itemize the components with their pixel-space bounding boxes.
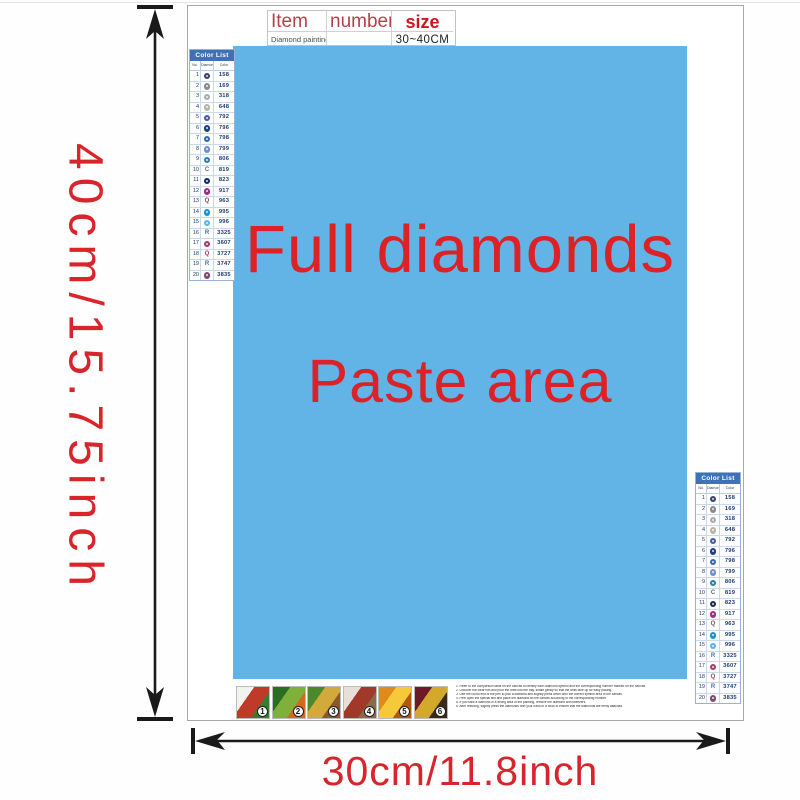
diamond-symbol-cell bbox=[201, 103, 214, 113]
dmc-color-code: 796 bbox=[720, 547, 740, 557]
color-list-row: 15 996 bbox=[190, 218, 234, 229]
color-list-row: 3 318 bbox=[696, 515, 740, 526]
dmc-color-code: 648 bbox=[214, 103, 234, 113]
diamond-symbol-icon bbox=[710, 695, 717, 702]
color-list-row: 8 799 bbox=[696, 568, 740, 579]
color-list-row: 17 3607 bbox=[696, 662, 740, 673]
diamond-symbol-cell bbox=[707, 515, 720, 525]
dmc-color-code: 318 bbox=[720, 515, 740, 525]
size-value-cell: 30~40CM bbox=[392, 31, 453, 45]
diamond-symbol-icon: Q bbox=[205, 197, 210, 207]
col-no: No. bbox=[696, 484, 707, 493]
dmc-color-code: 3747 bbox=[720, 683, 740, 693]
kit-sheet: Item number size Diamond painting 30~40C… bbox=[187, 5, 744, 721]
color-list-row: 7 798 bbox=[190, 134, 234, 145]
dmc-color-code: 3607 bbox=[214, 239, 234, 249]
diamond-symbol-icon bbox=[710, 580, 717, 587]
diamond-symbol-icon bbox=[204, 209, 211, 216]
instruction-line: 6. After finishing, slightly press the d… bbox=[456, 705, 710, 709]
diamond-symbol-cell bbox=[707, 494, 720, 504]
color-list-row: 13 Q 963 bbox=[190, 197, 234, 208]
dmc-color-code: 3325 bbox=[214, 229, 234, 239]
diamond-symbol-icon: R bbox=[205, 229, 209, 239]
diamond-symbol-icon bbox=[204, 241, 211, 248]
diamond-symbol-cell bbox=[201, 71, 214, 81]
diamond-symbol-cell bbox=[201, 92, 214, 102]
diamond-symbol-icon bbox=[710, 548, 717, 555]
dmc-color-code: 917 bbox=[214, 187, 234, 197]
color-number: 20 bbox=[190, 271, 201, 281]
col-no: No. bbox=[190, 61, 201, 70]
dmc-color-code: 3747 bbox=[214, 260, 234, 270]
diamond-symbol-cell bbox=[707, 641, 720, 651]
dmc-color-code: 806 bbox=[720, 578, 740, 588]
step-photo-thumbnail: 4 bbox=[343, 686, 377, 719]
diamond-symbol-cell: Q bbox=[201, 250, 214, 260]
color-number: 15 bbox=[190, 218, 201, 228]
color-number: 9 bbox=[696, 578, 707, 588]
dmc-color-code: 819 bbox=[214, 166, 234, 176]
diamond-symbol-icon bbox=[710, 517, 717, 524]
step-number-badge: 3 bbox=[328, 706, 339, 717]
diamond-symbol-icon: C bbox=[205, 166, 209, 176]
color-list-row: 7 798 bbox=[696, 557, 740, 568]
diamond-symbol-cell bbox=[707, 578, 720, 588]
color-list-row: 16 R 3325 bbox=[696, 652, 740, 663]
item-table-header-row: Item number size bbox=[268, 11, 455, 31]
diamond-symbol-icon bbox=[204, 178, 211, 185]
dmc-color-code: 996 bbox=[720, 641, 740, 651]
color-list-row: 9 806 bbox=[696, 578, 740, 589]
color-number: 5 bbox=[190, 113, 201, 123]
color-list-title: Color List bbox=[696, 473, 740, 484]
col-diamond: Diamond bbox=[707, 484, 720, 493]
color-list-row: 11 823 bbox=[190, 176, 234, 187]
step-photo-thumbnail: 1 bbox=[236, 686, 270, 719]
dmc-color-code: 3727 bbox=[720, 673, 740, 683]
color-number: 7 bbox=[696, 557, 707, 567]
paste-area-title-line2: Paste area bbox=[233, 346, 687, 416]
dmc-color-code: 169 bbox=[720, 505, 740, 515]
color-number: 10 bbox=[190, 166, 201, 176]
diamond-symbol-cell bbox=[201, 239, 214, 249]
dmc-color-code: 806 bbox=[214, 155, 234, 165]
color-list-row: 1 158 bbox=[696, 494, 740, 505]
diamond-symbol-cell bbox=[201, 113, 214, 123]
color-list-row: 9 806 bbox=[190, 155, 234, 166]
dmc-color-code: 158 bbox=[720, 494, 740, 504]
color-number: 2 bbox=[696, 505, 707, 515]
color-number: 3 bbox=[696, 515, 707, 525]
size-header-cell: size bbox=[392, 11, 453, 31]
color-number: 10 bbox=[696, 589, 707, 599]
dmc-color-code: 963 bbox=[720, 620, 740, 630]
color-list-rows: 1 158 2 169 3 318 bbox=[190, 71, 234, 280]
diamond-symbol-cell bbox=[201, 187, 214, 197]
color-number: 9 bbox=[190, 155, 201, 165]
color-list-row: 12 917 bbox=[190, 187, 234, 198]
color-list-row: 3 318 bbox=[190, 92, 234, 103]
diamond-symbol-cell bbox=[201, 155, 214, 165]
step-number-badge: 2 bbox=[293, 706, 304, 717]
color-number: 7 bbox=[190, 134, 201, 144]
color-list-row: 20 3835 bbox=[190, 271, 234, 281]
color-list-row: 18 Q 3727 bbox=[190, 250, 234, 261]
color-number: 14 bbox=[190, 208, 201, 218]
diamond-symbol-icon bbox=[204, 188, 211, 195]
dmc-color-code: 996 bbox=[214, 218, 234, 228]
color-number: 8 bbox=[696, 568, 707, 578]
color-number: 16 bbox=[190, 229, 201, 239]
diamond-symbol-icon bbox=[204, 83, 211, 90]
diamond-symbol-icon bbox=[204, 272, 211, 279]
color-number: 4 bbox=[696, 526, 707, 536]
dmc-color-code: 318 bbox=[214, 92, 234, 102]
color-number: 8 bbox=[190, 145, 201, 155]
diamond-symbol-icon bbox=[204, 104, 211, 111]
diamond-symbol-icon bbox=[710, 506, 717, 513]
diamond-symbol-cell bbox=[707, 557, 720, 567]
color-number: 18 bbox=[696, 673, 707, 683]
color-number: 11 bbox=[696, 599, 707, 609]
dmc-color-code: 648 bbox=[720, 526, 740, 536]
diamond-symbol-cell bbox=[201, 271, 214, 281]
dmc-color-code: 799 bbox=[214, 145, 234, 155]
diamond-symbol-cell: Q bbox=[707, 620, 720, 630]
diamond-symbol-icon bbox=[204, 115, 211, 122]
product-infographic: 40cm/15.75inch Item number size Diamond … bbox=[0, 0, 800, 800]
color-number: 18 bbox=[190, 250, 201, 260]
item-info-table: Item number size Diamond painting 30~40C… bbox=[267, 10, 456, 46]
dmc-color-code: 3835 bbox=[720, 694, 740, 704]
step-number-badge: 4 bbox=[364, 706, 375, 717]
diamond-symbol-cell: R bbox=[201, 260, 214, 270]
diamond-symbol-icon bbox=[204, 73, 211, 80]
vertical-dimension-arrow bbox=[130, 0, 180, 725]
step-number-badge: 1 bbox=[257, 706, 268, 717]
color-number: 1 bbox=[190, 71, 201, 81]
color-list-row: 2 169 bbox=[696, 505, 740, 516]
dmc-color-code: 995 bbox=[720, 631, 740, 641]
color-number: 6 bbox=[696, 547, 707, 557]
diamond-symbol-icon bbox=[710, 611, 717, 618]
color-list-row: 13 Q 963 bbox=[696, 620, 740, 631]
color-list-row: 4 648 bbox=[696, 526, 740, 537]
color-number: 12 bbox=[190, 187, 201, 197]
diamond-symbol-icon: R bbox=[711, 683, 715, 693]
color-list-row: 12 917 bbox=[696, 610, 740, 621]
diamond-symbol-cell bbox=[707, 568, 720, 578]
diamond-symbol-icon: R bbox=[205, 260, 209, 270]
diamond-symbol-cell bbox=[201, 145, 214, 155]
color-list-right: Color List No. Diamond Color 1 158 2 bbox=[695, 472, 741, 704]
diamond-symbol-cell: Q bbox=[707, 673, 720, 683]
color-list-row: 5 792 bbox=[190, 113, 234, 124]
step-photo-thumbnail: 6 bbox=[414, 686, 448, 719]
diamond-symbol-icon: Q bbox=[711, 673, 716, 683]
step-photo-thumbnail: 5 bbox=[378, 686, 412, 719]
diamond-symbol-cell: R bbox=[707, 652, 720, 662]
diamond-symbol-cell bbox=[201, 208, 214, 218]
top-edge-line bbox=[0, 2, 800, 3]
diamond-symbol-cell bbox=[707, 536, 720, 546]
color-list-row: 17 3607 bbox=[190, 239, 234, 250]
height-dimension-label: 40cm/15.75inch bbox=[56, 72, 114, 664]
color-list-row: 10 C 819 bbox=[190, 166, 234, 177]
color-list-row: 19 R 3747 bbox=[190, 260, 234, 271]
color-list-row: 4 648 bbox=[190, 103, 234, 114]
color-list-left: Color List No. Diamond Color 1 158 2 bbox=[189, 49, 235, 281]
color-list-rows: 1 158 2 169 3 318 bbox=[696, 494, 740, 703]
diamond-symbol-cell bbox=[201, 124, 214, 134]
step-photo-thumbnail: 3 bbox=[307, 686, 341, 719]
color-list-row: 10 C 819 bbox=[696, 589, 740, 600]
instruction-step-thumbnails: 1 2 3 4 5 6 bbox=[236, 686, 449, 719]
dmc-color-code: 3607 bbox=[720, 662, 740, 672]
color-number: 14 bbox=[696, 631, 707, 641]
diamond-symbol-icon bbox=[204, 125, 211, 132]
diamond-symbol-icon bbox=[204, 136, 211, 143]
color-number: 11 bbox=[190, 176, 201, 186]
diamond-symbol-cell bbox=[707, 526, 720, 536]
color-number: 17 bbox=[190, 239, 201, 249]
diamond-symbol-icon bbox=[710, 569, 717, 576]
diamond-symbol-icon bbox=[204, 146, 211, 153]
diamond-symbol-icon: Q bbox=[711, 620, 716, 630]
color-number: 6 bbox=[190, 124, 201, 134]
diamond-symbol-icon bbox=[710, 632, 717, 639]
color-number: 13 bbox=[190, 197, 201, 207]
color-list-row: 18 Q 3727 bbox=[696, 673, 740, 684]
color-number: 13 bbox=[696, 620, 707, 630]
diamond-symbol-cell: C bbox=[201, 166, 214, 176]
dmc-color-code: 792 bbox=[720, 536, 740, 546]
dmc-color-code: 3727 bbox=[214, 250, 234, 260]
dmc-color-code: 798 bbox=[214, 134, 234, 144]
dmc-color-code: 799 bbox=[720, 568, 740, 578]
diamond-symbol-cell bbox=[707, 631, 720, 641]
diamond-symbol-icon: C bbox=[711, 589, 715, 599]
item-table-data-row: Diamond painting 30~40CM bbox=[268, 31, 455, 45]
width-dimension-label: 30cm/11.8inch bbox=[240, 748, 680, 795]
diamond-symbol-icon: Q bbox=[205, 250, 210, 260]
dmc-color-code: 792 bbox=[214, 113, 234, 123]
diamond-symbol-icon bbox=[710, 601, 717, 608]
color-number: 5 bbox=[696, 536, 707, 546]
dmc-color-code: 3325 bbox=[720, 652, 740, 662]
paste-area-canvas: Full diamonds Paste area bbox=[233, 46, 687, 679]
diamond-symbol-cell bbox=[201, 176, 214, 186]
diamond-symbol-cell bbox=[201, 82, 214, 92]
dmc-color-code: 819 bbox=[720, 589, 740, 599]
color-list-row: 5 792 bbox=[696, 536, 740, 547]
number-value-cell bbox=[327, 31, 392, 45]
color-list-row: 1 158 bbox=[190, 71, 234, 82]
dmc-color-code: 963 bbox=[214, 197, 234, 207]
dmc-color-code: 917 bbox=[720, 610, 740, 620]
color-list-column-headers: No. Diamond Color bbox=[696, 484, 740, 494]
diamond-symbol-icon bbox=[710, 538, 717, 545]
color-list-row: 6 796 bbox=[696, 547, 740, 558]
diamond-symbol-cell bbox=[707, 662, 720, 672]
diamond-symbol-icon bbox=[204, 220, 211, 227]
color-list-row: 15 996 bbox=[696, 641, 740, 652]
col-color: Color bbox=[720, 484, 740, 493]
diamond-symbol-icon bbox=[204, 157, 211, 164]
diamond-symbol-icon bbox=[710, 559, 717, 566]
diamond-symbol-cell bbox=[707, 505, 720, 515]
color-number: 15 bbox=[696, 641, 707, 651]
diamond-symbol-cell bbox=[707, 599, 720, 609]
color-list-column-headers: No. Diamond Color bbox=[190, 61, 234, 71]
item-header-cell: Item bbox=[268, 11, 327, 31]
dmc-color-code: 158 bbox=[214, 71, 234, 81]
dmc-color-code: 169 bbox=[214, 82, 234, 92]
color-number: 16 bbox=[696, 652, 707, 662]
instruction-text-block: 1. Refer to the comparison table on the … bbox=[456, 685, 710, 708]
dmc-color-code: 798 bbox=[720, 557, 740, 567]
color-list-row: 11 823 bbox=[696, 599, 740, 610]
paste-area-title-line1: Full diamonds bbox=[233, 211, 687, 288]
step-photo-thumbnail: 2 bbox=[272, 686, 306, 719]
diamond-symbol-cell: Q bbox=[201, 197, 214, 207]
diamond-symbol-icon bbox=[204, 94, 211, 101]
diamond-symbol-cell bbox=[707, 610, 720, 620]
diamond-symbol-icon bbox=[710, 664, 717, 671]
color-list-row: 8 799 bbox=[190, 145, 234, 156]
step-number-badge: 6 bbox=[435, 706, 446, 717]
dmc-color-code: 796 bbox=[214, 124, 234, 134]
diamond-symbol-icon bbox=[710, 496, 717, 503]
color-number: 2 bbox=[190, 82, 201, 92]
color-number: 1 bbox=[696, 494, 707, 504]
diamond-symbol-cell: C bbox=[707, 589, 720, 599]
diamond-symbol-icon: R bbox=[711, 652, 715, 662]
dmc-color-code: 3835 bbox=[214, 271, 234, 281]
dmc-color-code: 823 bbox=[720, 599, 740, 609]
diamond-symbol-cell bbox=[707, 547, 720, 557]
color-number: 17 bbox=[696, 662, 707, 672]
color-number: 4 bbox=[190, 103, 201, 113]
diamond-symbol-cell bbox=[201, 134, 214, 144]
color-list-row: 14 995 bbox=[696, 631, 740, 642]
dmc-color-code: 823 bbox=[214, 176, 234, 186]
color-number: 12 bbox=[696, 610, 707, 620]
color-list-title: Color List bbox=[190, 50, 234, 61]
item-value-cell: Diamond painting bbox=[268, 31, 327, 45]
color-number: 19 bbox=[190, 260, 201, 270]
diamond-symbol-icon bbox=[710, 643, 717, 650]
color-list-row: 14 995 bbox=[190, 208, 234, 219]
diamond-symbol-cell bbox=[201, 218, 214, 228]
dmc-color-code: 995 bbox=[214, 208, 234, 218]
color-list-row: 6 796 bbox=[190, 124, 234, 135]
diamond-symbol-icon bbox=[710, 527, 717, 534]
color-list-row: 2 169 bbox=[190, 82, 234, 93]
color-list-row: 16 R 3325 bbox=[190, 229, 234, 240]
diamond-symbol-cell: R bbox=[201, 229, 214, 239]
color-number: 3 bbox=[190, 92, 201, 102]
step-number-badge: 5 bbox=[399, 706, 410, 717]
col-diamond: Diamond bbox=[201, 61, 214, 70]
col-color: Color bbox=[214, 61, 234, 70]
number-header-cell: number bbox=[327, 11, 392, 31]
